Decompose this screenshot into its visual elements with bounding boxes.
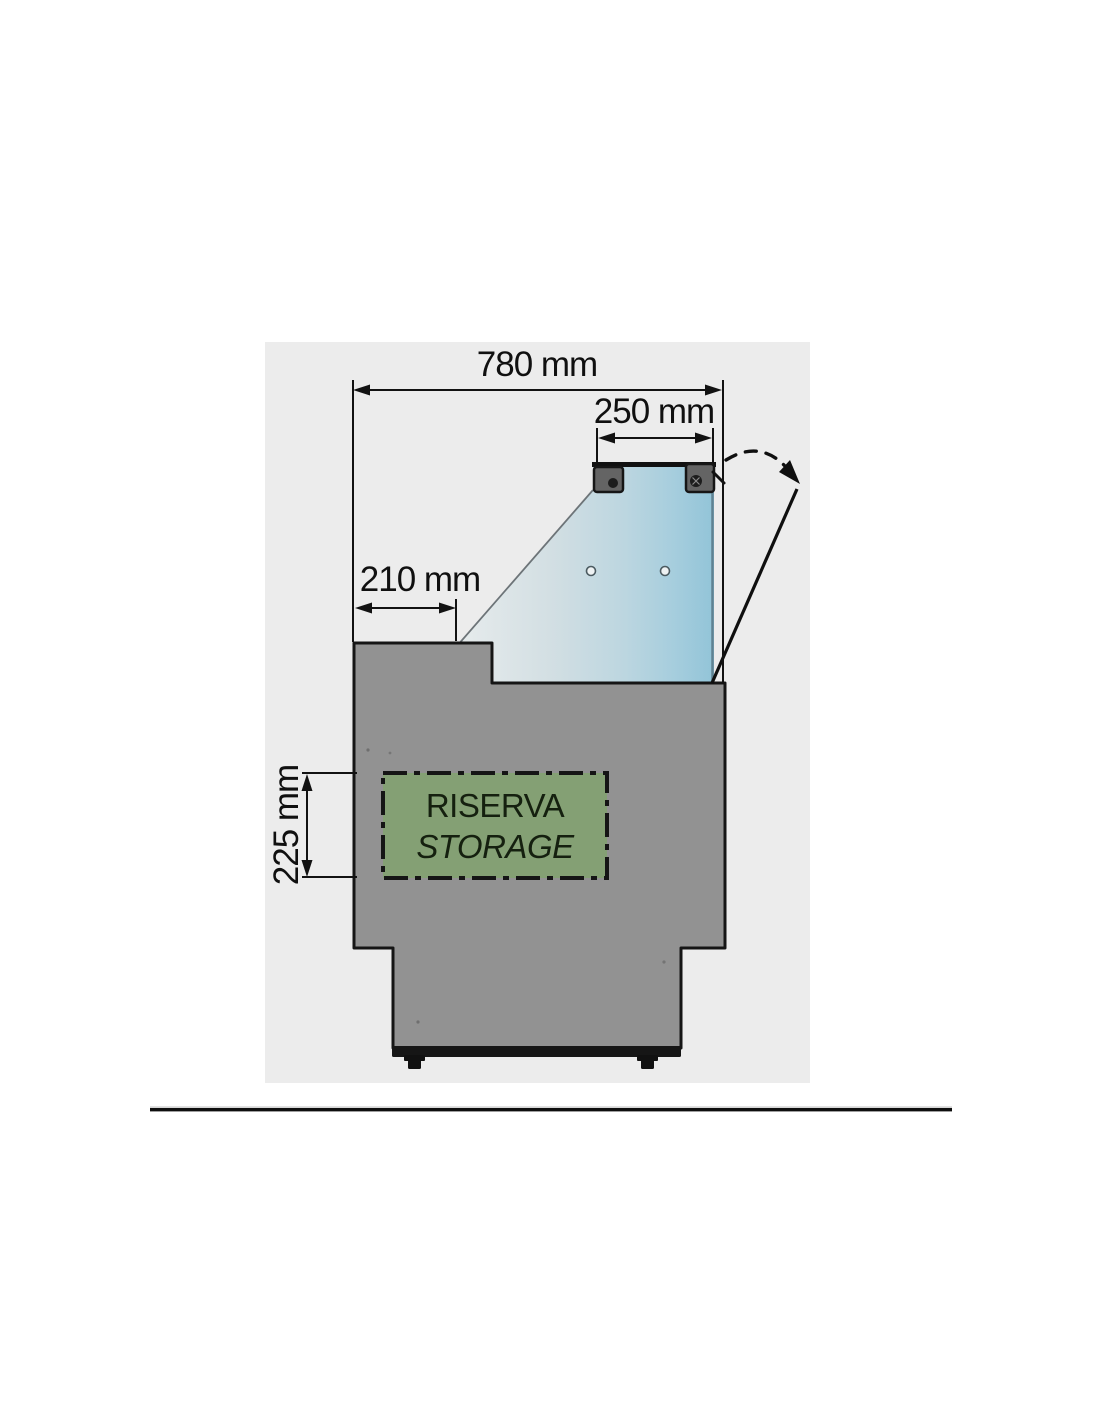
arrowhead — [353, 385, 370, 396]
storage-label-line1: RISERVA — [426, 785, 564, 826]
separator-rule — [150, 1107, 952, 1112]
arrowhead — [439, 603, 456, 614]
surface-speckle — [366, 748, 369, 751]
foot-right — [637, 1055, 658, 1069]
dimension-250 — [597, 428, 713, 463]
diagram-canvas — [0, 0, 1100, 1422]
dimension-210 — [355, 599, 456, 641]
hinge-bracket-left — [594, 467, 623, 492]
glass-hole-right — [661, 567, 670, 576]
page: 780 mm 250 mm 210 mm 225 mm RISERVA STOR… — [0, 0, 1100, 1422]
storage-zone-label: RISERVA STORAGE — [383, 773, 607, 878]
arrowhead — [598, 433, 615, 444]
dimension-225 — [302, 773, 358, 877]
dimension-label-front-ledge: 210 mm — [310, 561, 530, 599]
surface-speckle — [662, 960, 665, 963]
glass-hole-left — [587, 567, 596, 576]
surface-speckle — [416, 1020, 419, 1023]
lid-open-position-line — [712, 489, 797, 683]
dimension-label-total-width: 780 mm — [427, 346, 647, 384]
storage-label-line2: STORAGE — [416, 826, 573, 867]
screw-left — [608, 478, 618, 488]
dimension-label-lid-width: 250 mm — [544, 393, 764, 431]
arrowhead — [695, 433, 712, 444]
arrowhead — [355, 603, 372, 614]
lid-open-indicator — [712, 451, 800, 683]
separator-highlight — [150, 1107, 952, 1108]
surface-speckle — [389, 752, 392, 755]
foot-left — [404, 1055, 425, 1069]
dimension-label-storage-height: 225 mm — [268, 750, 306, 900]
separator-line — [150, 1108, 952, 1111]
